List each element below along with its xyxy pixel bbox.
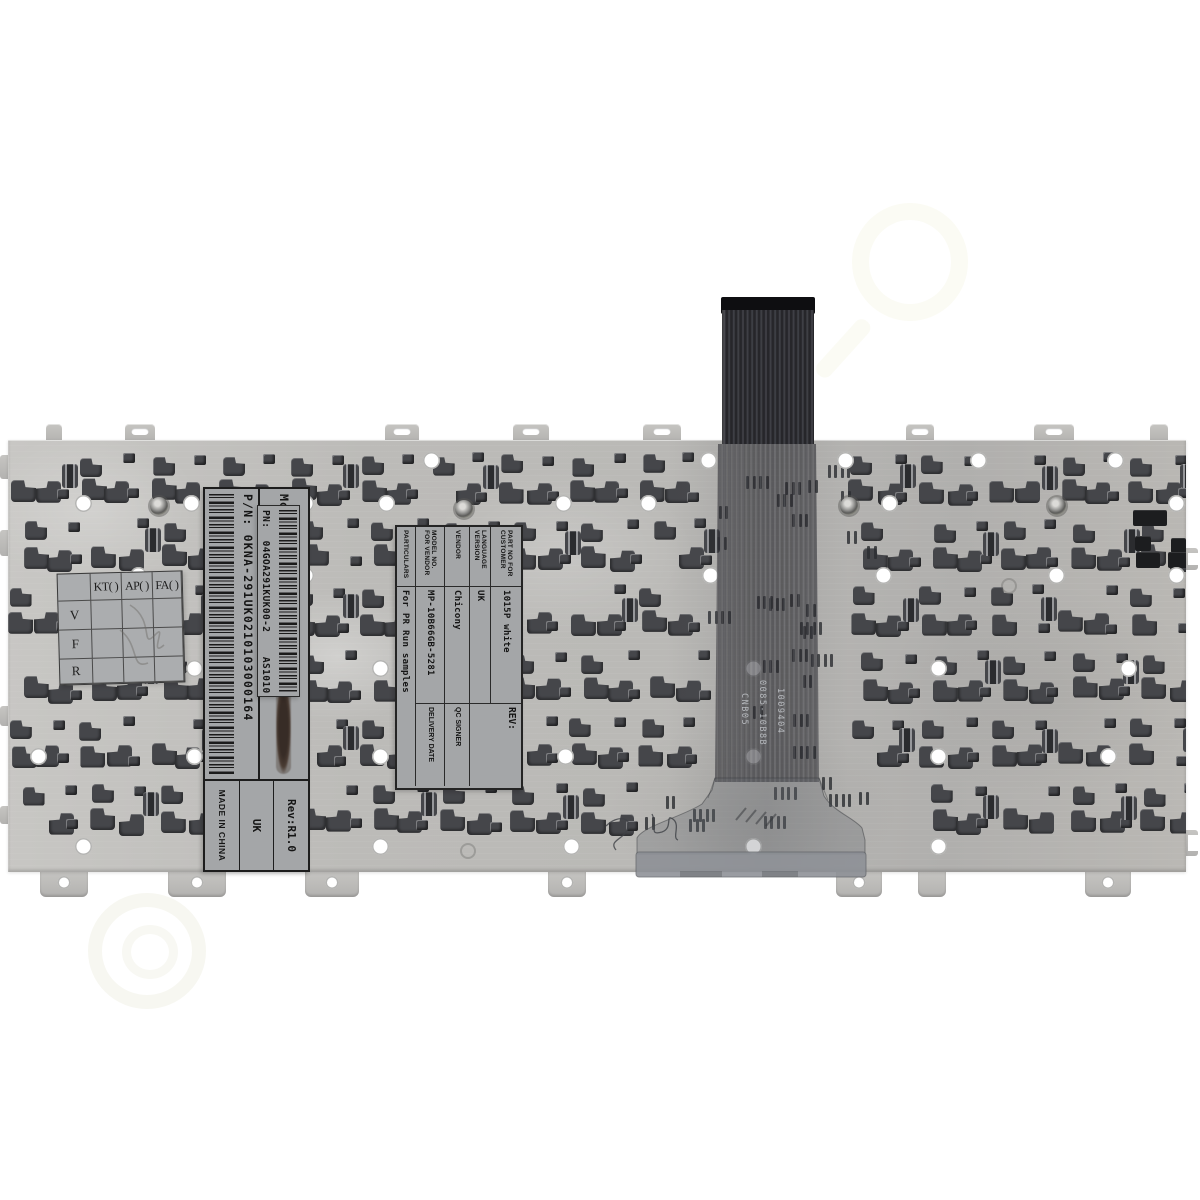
- key-clip-square: [402, 454, 414, 464]
- bottom-tab: [168, 871, 226, 897]
- screw-hole: [378, 495, 395, 512]
- key-clip-square: [350, 818, 362, 828]
- key-clip-hook: [1015, 481, 1040, 503]
- key-clip-square: [909, 557, 921, 567]
- key-clip-hook: [1170, 812, 1186, 834]
- key-clip-hook: [119, 814, 144, 836]
- key-clip-latch: [483, 465, 499, 489]
- spec-table-label: PART NO FOR CUSTOMER 1015P white REV: LA…: [395, 525, 523, 790]
- key-clip-hook: [104, 481, 129, 503]
- key-clip-hook: [1140, 809, 1165, 831]
- key-clip-hook: [8, 612, 33, 634]
- key-clip-latch: [343, 464, 359, 488]
- key-clip-hook: [440, 809, 465, 831]
- key-clip-hook: [919, 586, 941, 605]
- key-clip-square: [68, 522, 80, 532]
- key-clip-square: [416, 820, 428, 830]
- key-clip-hook: [153, 457, 175, 476]
- key-clip-square: [1035, 753, 1047, 763]
- key-clip-latch: [983, 795, 999, 819]
- keyboard-product-photo: HR#18 KT( ) AP( ) FA( ) V F R Model: MP-…: [0, 0, 1200, 1200]
- spec-value: 1015P white: [490, 587, 521, 704]
- pn-barcode-label: PN: 04GOA291KUK00-2 AS1010: [257, 505, 300, 697]
- key-clip-hook: [80, 458, 102, 477]
- emboss-ring: [460, 843, 476, 859]
- qc-grid-cell: [153, 598, 183, 628]
- key-clip-black: [1171, 538, 1186, 553]
- qc-grid-cell: [154, 627, 184, 657]
- key-clip-hook: [1001, 548, 1026, 570]
- key-clip-hook: [362, 456, 384, 475]
- key-clip-square: [350, 556, 362, 566]
- key-clip-square: [194, 455, 206, 465]
- key-clip-hook: [10, 588, 32, 607]
- key-clip-hook: [922, 614, 947, 636]
- screw-hole: [930, 838, 947, 855]
- screw-hole: [183, 495, 200, 512]
- key-clip-hook: [467, 813, 492, 835]
- screw-hole: [930, 748, 947, 765]
- key-clip-square: [1044, 651, 1056, 661]
- key-clip-latch: [343, 594, 359, 618]
- key-clip-latch: [903, 598, 919, 622]
- pn-text: PN: 04GOA291KUK00-2 AS1010: [260, 510, 271, 692]
- revision-text: Rev:R1.0: [273, 781, 308, 870]
- key-clip-hook: [34, 612, 59, 634]
- key-clip-hook: [371, 522, 393, 541]
- key-clip-square: [127, 488, 139, 498]
- key-clip-hook: [992, 614, 1017, 636]
- screw-hole: [1120, 660, 1137, 677]
- key-clip-hook: [1130, 588, 1152, 607]
- key-clip-hook: [1071, 810, 1096, 832]
- spec-value: Chicony: [444, 587, 469, 704]
- key-clip-hook: [161, 811, 186, 833]
- right-tab: [1184, 548, 1198, 570]
- key-clip-hook: [326, 810, 351, 832]
- key-clip-square: [1173, 588, 1185, 598]
- key-clip-square: [966, 717, 978, 727]
- key-clip-hook: [921, 455, 943, 474]
- key-clip-square: [332, 455, 344, 465]
- key-clip-square: [475, 492, 487, 502]
- key-clip-square: [546, 716, 558, 726]
- key-clip-latch: [421, 792, 437, 816]
- key-clip-square: [976, 521, 988, 531]
- key-clip-square: [1184, 783, 1187, 793]
- spec-field: MODEL NO. FOR VENDOR: [415, 527, 444, 587]
- tab-hole: [58, 876, 71, 889]
- key-clip-hook: [373, 785, 395, 804]
- key-clip-hook: [1141, 677, 1166, 699]
- key-clip-square: [1044, 519, 1056, 529]
- spec-value: MP-10B66GB-5281: [415, 587, 444, 704]
- key-clip-hook: [24, 676, 49, 698]
- key-clip-square: [964, 587, 976, 597]
- tab-slot: [394, 428, 411, 435]
- qc-row-header: V: [58, 601, 92, 631]
- key-clip-hook: [992, 720, 1014, 739]
- key-clip-latch: [900, 464, 916, 488]
- key-clip-hook: [11, 480, 36, 502]
- key-clip-hook: [91, 546, 116, 568]
- key-clip-hook: [1128, 481, 1153, 503]
- screw-hole: [75, 838, 92, 855]
- key-clip-square: [1046, 687, 1058, 697]
- key-clip-hook: [1058, 742, 1083, 764]
- tab-slot: [132, 428, 149, 435]
- key-clip-hook: [360, 614, 385, 636]
- screw-hole: [30, 748, 47, 765]
- qc-grid-cell: [155, 656, 185, 682]
- qc-grid-cell: [123, 628, 155, 658]
- bottom-tab: [40, 871, 88, 897]
- key-clip-square: [70, 690, 82, 700]
- emboss-ring: [1001, 578, 1017, 594]
- key-clip-square: [908, 688, 920, 698]
- key-clip-hook: [1073, 676, 1098, 698]
- key-clip-hook: [933, 547, 958, 569]
- key-clip-square: [347, 518, 359, 528]
- key-clip-square: [1107, 491, 1119, 501]
- key-clip-hook: [934, 524, 956, 543]
- key-clip-hook: [1003, 808, 1028, 830]
- key-clip-hook: [922, 720, 944, 739]
- screw-hole: [372, 838, 389, 855]
- right-tab: [1184, 830, 1198, 856]
- key-clip-square: [977, 650, 989, 660]
- bottom-tab: [1085, 871, 1131, 897]
- key-clip-hook: [1170, 680, 1186, 702]
- qc-grid-cell: [91, 600, 123, 630]
- key-clip-latch: [145, 528, 161, 552]
- key-clip-hook: [92, 784, 114, 803]
- barcode: [279, 510, 297, 692]
- bottom-tab: [918, 871, 946, 897]
- key-clip-square: [136, 686, 148, 696]
- qc-grid-cell: [58, 574, 92, 602]
- key-clip-latch: [1042, 466, 1058, 490]
- spec-field: LANGUAGE VERSION: [469, 527, 490, 587]
- key-clip-hook: [501, 454, 523, 473]
- key-clip-latch: [62, 464, 78, 488]
- screw-hole: [423, 452, 440, 469]
- key-clip-square: [490, 822, 502, 832]
- key-clip-hook: [989, 481, 1014, 503]
- part-number: P/N: 0KNA-291UK0210103000164: [241, 494, 255, 774]
- key-clip-latch: [1183, 728, 1186, 752]
- cable-stiffener-bar: [636, 852, 866, 877]
- key-clip-hook: [1071, 547, 1096, 569]
- key-clip-hook: [362, 720, 384, 739]
- key-clip-square: [65, 785, 77, 795]
- key-clip-hook: [933, 809, 958, 831]
- key-clip-square: [70, 554, 82, 564]
- key-clip-hook: [499, 482, 524, 504]
- key-clip-hook: [47, 550, 72, 572]
- key-clip-hook: [164, 523, 186, 542]
- key-clip-hook: [1073, 524, 1095, 543]
- qc-col-header: FA( ): [153, 571, 183, 599]
- key-clip-square: [1034, 455, 1046, 465]
- key-clip-hook: [1073, 653, 1095, 672]
- screw: [1048, 497, 1066, 515]
- key-clip-square: [472, 452, 484, 462]
- key-clip-square: [123, 716, 135, 726]
- key-clip-hook: [223, 457, 245, 476]
- key-clip-hook: [1129, 743, 1154, 765]
- key-clip-hook: [1058, 610, 1083, 632]
- origin-text: MADE IN CHINA: [205, 781, 239, 870]
- key-clip-hook: [23, 787, 45, 806]
- key-clip-latch: [1180, 464, 1186, 488]
- key-clip-black: [1135, 536, 1151, 551]
- key-clip-square: [346, 785, 358, 795]
- ribbon-cable: CNB05 0085-10B8B 1009404: [560, 280, 900, 900]
- key-clip-latch: [1121, 796, 1137, 820]
- key-clip-hook: [25, 521, 47, 540]
- key-clip-hook: [992, 745, 1017, 767]
- key-clip-hook: [24, 547, 49, 569]
- key-clip-hook: [931, 784, 953, 803]
- spec-field: PARTICULARS: [395, 527, 415, 587]
- key-clip-latch: [1041, 597, 1057, 621]
- screw: [150, 497, 168, 515]
- key-clip-square: [1032, 584, 1044, 594]
- screw-hole: [372, 660, 389, 677]
- key-clip-latch: [983, 532, 999, 556]
- barcode: [209, 494, 234, 774]
- key-clip-hook: [1003, 679, 1028, 701]
- qc-grid-cell: [92, 629, 124, 659]
- key-clip-black: [1168, 552, 1186, 568]
- key-clip-hook: [933, 680, 958, 702]
- key-clip-square: [1105, 624, 1117, 634]
- key-clip-hook: [1004, 521, 1026, 540]
- screw-hole: [1107, 452, 1124, 469]
- key-clip-hook: [1143, 655, 1165, 674]
- spec-rev: REV:: [469, 704, 521, 786]
- key-clip-square: [263, 454, 275, 464]
- key-clip-square: [337, 623, 349, 633]
- model-label-side: Rev:R1.0 UK MADE IN CHINA: [205, 781, 308, 870]
- key-clip-latch: [143, 792, 159, 816]
- tab-slot: [1046, 428, 1063, 435]
- key-clip-hook: [80, 746, 105, 768]
- screw-hole: [186, 660, 203, 677]
- key-clip-hook: [10, 720, 32, 739]
- key-clip-square: [53, 720, 65, 730]
- key-clip-hook: [919, 482, 944, 504]
- key-clip-square: [965, 620, 977, 630]
- cable-body: [722, 310, 814, 444]
- tab-slot: [523, 428, 540, 435]
- key-clip-hook: [362, 589, 384, 608]
- key-clip-latch: [985, 660, 1001, 684]
- layout-region-text: UK: [239, 781, 274, 870]
- key-clip-black: [1136, 552, 1160, 568]
- key-clip-square: [1048, 786, 1060, 796]
- key-clip-square: [57, 753, 69, 763]
- key-clip-square: [1106, 585, 1118, 595]
- screw-hole: [186, 748, 203, 765]
- key-clip-square: [123, 453, 135, 463]
- screw-hole: [372, 748, 389, 765]
- key-clip-square: [345, 650, 357, 660]
- screw-hole: [1048, 567, 1065, 584]
- screw-hole: [1168, 495, 1185, 512]
- qc-check-grid-label: KT( ) AP( ) FA( ) V F R: [57, 570, 186, 685]
- screw: [455, 500, 473, 518]
- key-clip-hook: [152, 478, 177, 500]
- spec-value: For PR Run samples: [395, 587, 415, 786]
- key-clip-hook: [536, 678, 561, 700]
- key-clip-hook: [291, 458, 313, 477]
- key-clip-square: [128, 756, 140, 766]
- key-clip-square: [1175, 455, 1186, 465]
- key-clip-hook: [152, 743, 177, 765]
- key-clip-hook: [1130, 458, 1152, 477]
- key-clip-square: [1118, 686, 1130, 696]
- key-clip-hook: [1130, 718, 1152, 737]
- key-clip-square: [1178, 623, 1186, 633]
- key-clip-square: [546, 621, 558, 631]
- tab-notch: [1188, 835, 1198, 851]
- screw-hole: [1168, 567, 1185, 584]
- key-clip-square: [966, 491, 978, 501]
- key-clip-square: [338, 490, 350, 500]
- spec-extra: QC SIGNER: [444, 704, 469, 786]
- key-clip-hook: [1062, 479, 1087, 501]
- key-clip-square: [542, 456, 554, 466]
- key-clip-square: [1104, 718, 1116, 728]
- key-clip-hook: [1063, 457, 1085, 476]
- key-clip-square: [137, 518, 149, 528]
- key-clip-hook: [510, 810, 535, 832]
- cable-stamp-line: 0085-10B8B: [757, 680, 767, 746]
- key-clip-square: [57, 489, 69, 499]
- screw-hole: [1100, 748, 1117, 765]
- key-clip-square: [546, 753, 558, 763]
- key-clip-square: [979, 687, 991, 697]
- qc-row-header: F: [59, 630, 93, 660]
- cable-stamp-line: 1009404: [775, 688, 785, 734]
- bottom-tab: [305, 871, 359, 897]
- key-clip-square: [349, 690, 361, 700]
- key-clip-hook: [374, 808, 399, 830]
- key-clip-square: [406, 489, 418, 499]
- key-clip-hook: [1073, 786, 1095, 805]
- key-clip-hook: [1003, 656, 1025, 675]
- key-clip-hook: [1029, 812, 1054, 834]
- spec-field: VENDOR: [444, 527, 469, 587]
- spec-extra: DELIVERY DATE: [415, 704, 444, 786]
- key-clip-square: [334, 756, 346, 766]
- spec-value: UK: [469, 587, 490, 704]
- spec-field: PART NO FOR CUSTOMER: [490, 527, 521, 587]
- tab-hole: [191, 876, 204, 889]
- key-clip-hook: [1132, 614, 1157, 636]
- pn-row: P/N: 0KNA-291UK0210103000164: [205, 489, 258, 779]
- qc-grid-cell: [122, 599, 154, 629]
- key-clip-hook: [957, 550, 982, 572]
- watermark-ring: [122, 925, 178, 979]
- qc-grid-cell: [93, 658, 125, 684]
- key-clip-square: [967, 752, 979, 762]
- cable-stamp-line: CNB05: [739, 693, 749, 726]
- key-clip-square: [905, 654, 917, 664]
- key-clip-square: [976, 818, 988, 828]
- tab-slot: [912, 428, 929, 435]
- screw-hole: [970, 452, 987, 469]
- screw-hole: [75, 495, 92, 512]
- qc-col-header: AP( ): [122, 572, 154, 600]
- key-clip-hook: [161, 785, 183, 804]
- key-clip-hook: [90, 808, 115, 830]
- tab-hole: [326, 876, 339, 889]
- key-clip-square: [1118, 557, 1130, 567]
- key-clip-latch: [1042, 729, 1058, 753]
- key-clip-hook: [1144, 788, 1166, 807]
- key-clip-square: [66, 819, 78, 829]
- key-clip-square: [1046, 557, 1058, 567]
- key-clip-square: [1038, 623, 1050, 633]
- key-clip-square: [1174, 718, 1186, 728]
- tab-notch: [1188, 553, 1198, 565]
- key-clip-latch: [899, 728, 915, 752]
- key-clip-hook: [79, 722, 101, 741]
- qc-row-header: R: [60, 659, 94, 685]
- key-clip-hook: [162, 544, 187, 566]
- qc-grid-cell: [124, 657, 156, 683]
- screw-hole: [930, 660, 947, 677]
- qc-col-header: KT( ): [91, 573, 123, 601]
- key-clip-square: [1176, 756, 1186, 766]
- tab-hole: [1102, 876, 1115, 889]
- key-clip-latch: [343, 726, 359, 750]
- key-clip-black: [1133, 510, 1167, 526]
- key-clip-square: [1115, 783, 1127, 793]
